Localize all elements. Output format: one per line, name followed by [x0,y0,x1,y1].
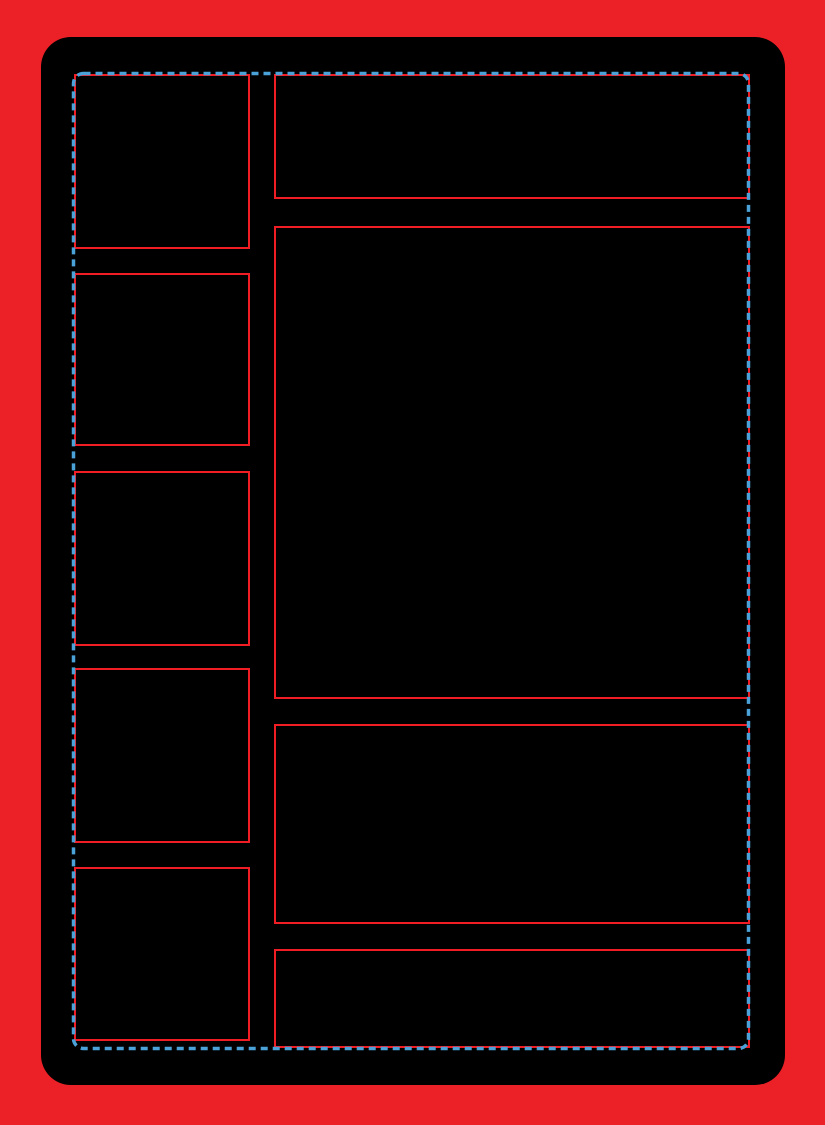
right-panel-4 [274,949,750,1048]
left-panel-1 [74,74,250,249]
right-panel-3 [274,724,750,924]
right-panel-2 [274,226,750,699]
page-background [0,0,825,1125]
right-panel-1 [274,74,750,199]
left-panel-2 [74,273,250,446]
left-panel-3 [74,471,250,646]
left-panel-5 [74,867,250,1041]
left-panel-4 [74,668,250,843]
